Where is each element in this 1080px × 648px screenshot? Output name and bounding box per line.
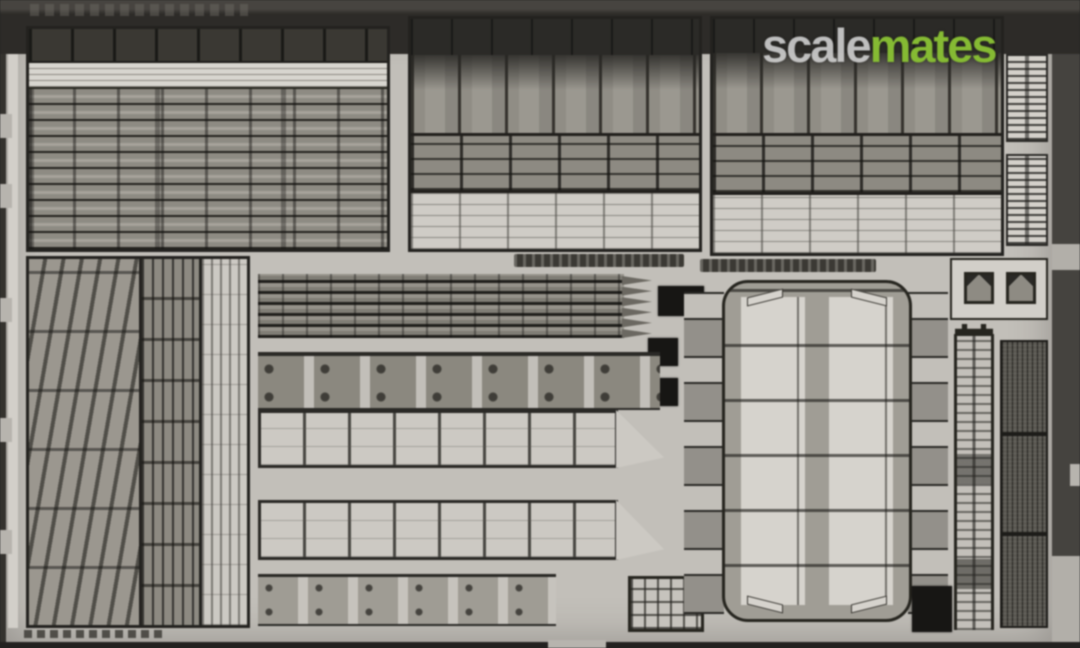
clamp-opening (964, 272, 994, 304)
tread-bar (258, 410, 618, 468)
grille-grid-section (411, 133, 699, 193)
arrow-tip (622, 276, 652, 285)
ladder-strip-segment (1006, 154, 1048, 246)
strip-arrow-tips (622, 276, 652, 338)
fret-edge-tab (0, 298, 12, 322)
photo-etch-fret-photo: scalemates (0, 0, 1080, 648)
watermark-mates-text: mates (870, 19, 996, 72)
louver-dark-row (29, 29, 387, 63)
background-right-light-patch (1052, 556, 1080, 642)
comb-bracket-row (258, 352, 660, 410)
thin-strip-part (700, 259, 876, 272)
grille-panel-top-middle (408, 16, 702, 252)
louver-strips (29, 89, 387, 249)
rounded-fender-assembly (722, 280, 912, 622)
etched-marking-top-left (30, 4, 248, 16)
attachment-tab-column-left (684, 292, 724, 614)
clamp-bracket-part (950, 258, 1048, 320)
mesh-screen-panel (1000, 340, 1048, 628)
tread-bar (258, 500, 618, 560)
fender-rib-lines (725, 283, 909, 619)
stacked-strips-band (258, 274, 624, 338)
grille-light-section (713, 195, 1001, 253)
fret-edge-tab (0, 418, 12, 442)
clamp-opening (1006, 272, 1036, 304)
fret-edge-tab (1070, 464, 1080, 486)
fender-light-column (199, 259, 247, 625)
fret-edge-tab (0, 530, 12, 554)
background-right-light-band (1052, 244, 1080, 270)
fender-panel-left (26, 256, 250, 628)
thin-strip-part (514, 254, 684, 267)
etched-marking-bottom-left (24, 630, 164, 638)
fret-edge-tab (0, 114, 12, 138)
fret-edge-tab (0, 184, 12, 208)
arrow-tip (622, 318, 652, 327)
comb-bracket-row-small (258, 574, 556, 626)
fret-bottom-tab (548, 640, 606, 648)
grille-dark-top (411, 19, 699, 55)
grille-light-section (411, 193, 699, 249)
grille-grid-section (713, 133, 1001, 195)
arrow-tip (622, 308, 652, 317)
grille-fringe-strips (411, 55, 699, 133)
arrow-tip (622, 329, 652, 338)
attachment-tab-column-right (908, 292, 948, 614)
fender-curved-strips (29, 259, 139, 625)
scalemates-watermark: scalemates (762, 22, 995, 69)
fender-ribbed-column (139, 259, 199, 625)
louver-light-row (29, 63, 387, 89)
watermark-scale-text: scale (762, 19, 870, 72)
arrow-tip (622, 297, 652, 306)
cable-guide-strip (954, 334, 994, 630)
black-etched-part (912, 586, 952, 632)
ladder-strip-segment (1006, 54, 1048, 142)
arrow-tip (622, 287, 652, 296)
louver-panel-top-left (26, 26, 390, 252)
background-bottom-strip (0, 642, 1080, 648)
